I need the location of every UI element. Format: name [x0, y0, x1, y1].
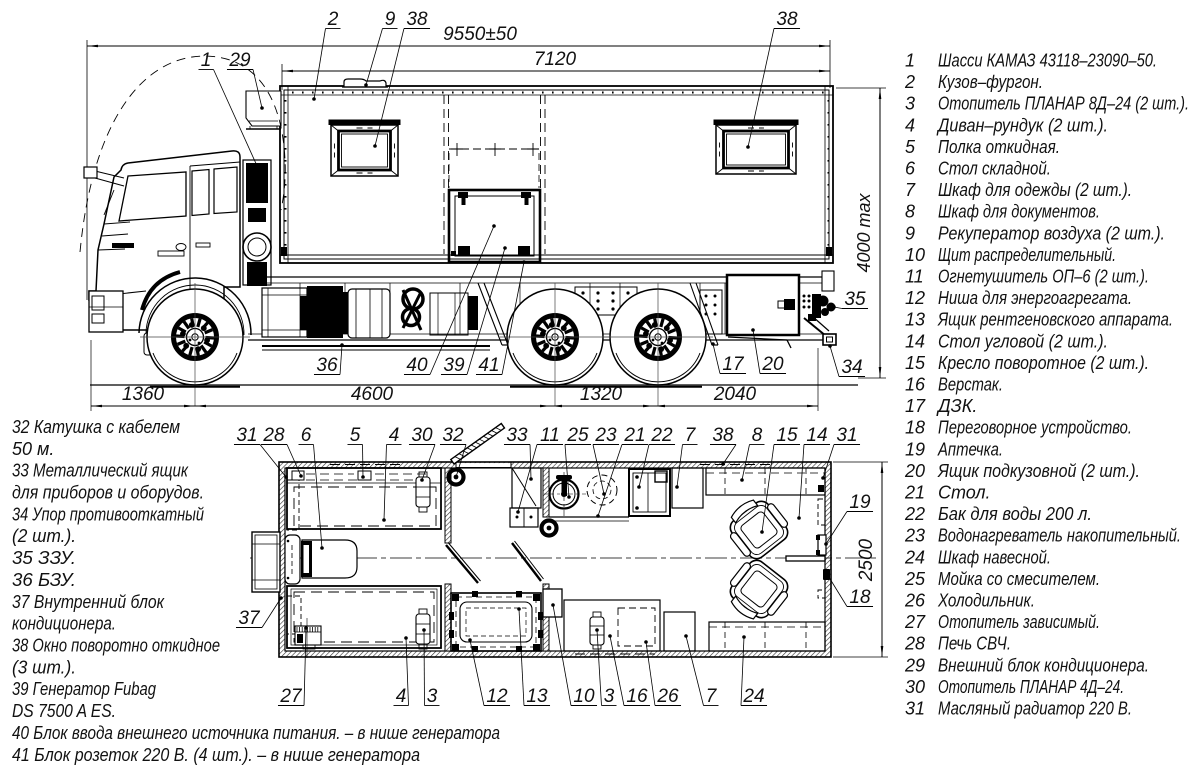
svg-text:2500: 2500 — [856, 538, 877, 582]
svg-text:1320: 1320 — [580, 384, 623, 405]
svg-text:Мойка со смесителем.: Мойка со смесителем. — [938, 569, 1100, 589]
svg-text:1360: 1360 — [122, 384, 165, 405]
svg-text:31: 31 — [905, 699, 925, 719]
svg-text:24: 24 — [742, 686, 764, 707]
svg-text:50 м.: 50 м. — [12, 439, 54, 459]
svg-text:26: 26 — [904, 591, 926, 611]
svg-text:1: 1 — [201, 50, 212, 71]
svg-text:37 Внутренний блок: 37 Внутренний блок — [12, 592, 165, 612]
svg-text:40 Блок ввода внешнего источни: 40 Блок ввода внешнего источника питания… — [12, 723, 500, 743]
svg-text:Шкаф для одежды (2 шт.).: Шкаф для одежды (2 шт.). — [938, 180, 1132, 200]
svg-text:DS 7500 A ES.: DS 7500 A ES. — [12, 701, 116, 721]
svg-text:28: 28 — [904, 634, 925, 654]
svg-text:10: 10 — [573, 686, 595, 707]
svg-text:40: 40 — [406, 355, 428, 376]
svg-text:27: 27 — [904, 612, 926, 632]
svg-text:21: 21 — [623, 425, 645, 446]
svg-text:Печь СВЧ.: Печь СВЧ. — [938, 634, 1011, 654]
svg-text:7120: 7120 — [534, 49, 577, 70]
svg-text:28: 28 — [262, 425, 285, 446]
svg-text:22: 22 — [904, 504, 925, 524]
svg-text:Отопитель ПЛАНАР 8Д–24 (2 шт.): Отопитель ПЛАНАР 8Д–24 (2 шт.). — [938, 94, 1189, 114]
svg-text:34: 34 — [841, 357, 862, 378]
svg-text:16: 16 — [905, 375, 926, 395]
svg-text:9: 9 — [385, 9, 396, 30]
svg-text:33: 33 — [506, 425, 528, 446]
svg-text:9: 9 — [905, 223, 915, 243]
svg-text:39: 39 — [443, 355, 465, 376]
svg-text:для приборов и оборудов.: для приборов и оборудов. — [12, 483, 204, 503]
svg-text:Верстак.: Верстак. — [938, 375, 1003, 395]
svg-text:6: 6 — [905, 159, 916, 179]
svg-text:17: 17 — [722, 354, 745, 375]
svg-text:4: 4 — [905, 115, 915, 135]
svg-text:32: 32 — [442, 425, 464, 446]
svg-text:Полка откидная.: Полка откидная. — [938, 137, 1060, 157]
svg-text:3: 3 — [604, 686, 615, 707]
svg-text:25: 25 — [566, 425, 589, 446]
svg-text:1: 1 — [905, 51, 915, 71]
svg-text:5: 5 — [905, 137, 916, 157]
svg-text:27: 27 — [279, 686, 303, 707]
svg-text:12: 12 — [905, 288, 925, 308]
svg-text:11: 11 — [905, 267, 924, 287]
svg-text:Отопитель зависимый.: Отопитель зависимый. — [938, 612, 1100, 632]
svg-text:3: 3 — [905, 94, 915, 114]
svg-text:9550±50: 9550±50 — [443, 24, 517, 45]
svg-text:кондиционера.: кондиционера. — [12, 614, 116, 634]
svg-text:38: 38 — [406, 9, 428, 30]
svg-text:Водонагреватель накопительный.: Водонагреватель накопительный. — [938, 526, 1181, 546]
svg-text:Шкаф навесной.: Шкаф навесной. — [938, 547, 1051, 567]
svg-text:41 Блок розеток 220 В. (4 шт.): 41 Блок розеток 220 В. (4 шт.). – в нише… — [12, 745, 420, 765]
svg-text:41: 41 — [478, 355, 499, 376]
svg-text:14: 14 — [905, 331, 925, 351]
svg-text:31: 31 — [236, 425, 257, 446]
svg-text:15: 15 — [905, 353, 926, 373]
svg-text:10: 10 — [905, 245, 925, 265]
svg-text:30: 30 — [905, 677, 925, 697]
svg-text:Огнетушитель ОП–6 (2 шт.).: Огнетушитель ОП–6 (2 шт.). — [938, 267, 1149, 287]
svg-text:11: 11 — [540, 425, 560, 446]
svg-text:8: 8 — [905, 202, 915, 222]
svg-text:26: 26 — [656, 686, 679, 707]
svg-text:(2 шт.).: (2 шт.). — [12, 526, 76, 546]
svg-text:12: 12 — [486, 686, 508, 707]
svg-text:7: 7 — [706, 686, 718, 707]
svg-text:Отопитель ПЛАНАР 4Д–24.: Отопитель ПЛАНАР 4Д–24. — [938, 677, 1124, 697]
svg-text:Рекуператор воздуха (2 шт.).: Рекуператор воздуха (2 шт.). — [938, 223, 1165, 243]
svg-text:35: 35 — [844, 289, 866, 310]
svg-text:31: 31 — [836, 425, 857, 446]
svg-text:39 Генератор Fubag: 39 Генератор Fubag — [12, 679, 156, 699]
svg-text:37: 37 — [238, 608, 261, 629]
svg-text:34 Упор противооткатный: 34 Упор противооткатный — [12, 504, 204, 524]
svg-text:18: 18 — [849, 587, 871, 608]
svg-text:4000 max: 4000 max — [854, 192, 874, 272]
svg-text:30: 30 — [411, 425, 433, 446]
svg-text:35 ЗЗУ.: 35 ЗЗУ. — [12, 548, 76, 568]
svg-text:Диван–рундук (2 шт.).: Диван–рундук (2 шт.). — [936, 115, 1108, 135]
svg-text:23: 23 — [594, 425, 617, 446]
svg-text:Стол.: Стол. — [938, 483, 991, 503]
svg-text:Аптечка.: Аптечка. — [937, 439, 1003, 459]
svg-text:2: 2 — [904, 72, 915, 92]
svg-text:7: 7 — [685, 425, 697, 446]
svg-text:16: 16 — [626, 686, 648, 707]
svg-text:Кузов–фургон.: Кузов–фургон. — [938, 72, 1043, 92]
svg-text:33 Металлический ящик: 33 Металлический ящик — [12, 461, 189, 481]
svg-text:8: 8 — [752, 425, 763, 446]
svg-text:24: 24 — [904, 547, 925, 567]
svg-text:Ящик рентгеновского аппарата.: Ящик рентгеновского аппарата. — [937, 310, 1173, 330]
svg-text:38: 38 — [776, 9, 798, 30]
svg-text:3: 3 — [427, 686, 438, 707]
svg-text:Холодильник.: Холодильник. — [937, 591, 1035, 611]
svg-text:Ящик подкузовной (2 шт.).: Ящик подкузовной (2 шт.). — [937, 461, 1140, 481]
svg-text:19: 19 — [905, 439, 925, 459]
svg-text:29: 29 — [904, 655, 925, 675]
svg-text:14: 14 — [806, 425, 827, 446]
svg-text:Стол угловой (2 шт.).: Стол угловой (2 шт.). — [938, 331, 1108, 351]
svg-text:Шкаф для документов.: Шкаф для документов. — [938, 202, 1100, 222]
svg-text:Внешний блок кондиционера.: Внешний блок кондиционера. — [938, 655, 1149, 675]
svg-text:7: 7 — [905, 180, 916, 200]
svg-text:4600: 4600 — [351, 384, 394, 405]
svg-text:23: 23 — [904, 526, 925, 546]
svg-text:17: 17 — [905, 396, 926, 416]
svg-text:4: 4 — [396, 686, 407, 707]
svg-text:Шасси КАМАЗ 43118–23090–50.: Шасси КАМАЗ 43118–23090–50. — [938, 51, 1157, 71]
svg-text:Бак для воды 200 л.: Бак для воды 200 л. — [938, 504, 1092, 524]
svg-text:19: 19 — [849, 492, 871, 513]
svg-text:5: 5 — [350, 425, 361, 446]
svg-text:13: 13 — [526, 686, 548, 707]
svg-text:29: 29 — [228, 50, 251, 71]
svg-text:22: 22 — [650, 425, 673, 446]
svg-text:Масляный радиатор 220 В.: Масляный радиатор 220 В. — [938, 699, 1132, 719]
svg-text:2: 2 — [327, 9, 339, 30]
svg-text:(3 шт.).: (3 шт.). — [12, 657, 76, 677]
svg-text:6: 6 — [301, 425, 312, 446]
svg-text:38: 38 — [712, 425, 734, 446]
svg-text:ДЗК.: ДЗК. — [936, 396, 977, 416]
svg-text:2040: 2040 — [713, 384, 757, 405]
svg-text:20: 20 — [904, 461, 925, 481]
svg-text:Кресло поворотное (2 шт.).: Кресло поворотное (2 шт.). — [938, 353, 1149, 373]
svg-text:32 Катушка с кабелем: 32 Катушка с кабелем — [12, 417, 180, 437]
svg-text:4: 4 — [389, 425, 400, 446]
svg-text:36: 36 — [316, 355, 338, 376]
svg-text:18: 18 — [905, 418, 925, 438]
svg-text:Щит распределительный.: Щит распределительный. — [938, 245, 1116, 265]
svg-text:15: 15 — [776, 425, 798, 446]
svg-text:13: 13 — [905, 310, 925, 330]
svg-text:20: 20 — [761, 354, 784, 375]
svg-text:38 Окно поворотно откидное: 38 Окно поворотно откидное — [12, 636, 220, 656]
svg-text:Стол складной.: Стол складной. — [938, 159, 1051, 179]
svg-text:25: 25 — [904, 569, 926, 589]
svg-text:21: 21 — [904, 483, 925, 503]
svg-text:36 БЗУ.: 36 БЗУ. — [12, 570, 76, 590]
svg-text:Ниша для энергоагрегата.: Ниша для энергоагрегата. — [938, 288, 1132, 308]
svg-text:Переговорное устройство.: Переговорное устройство. — [938, 418, 1132, 438]
